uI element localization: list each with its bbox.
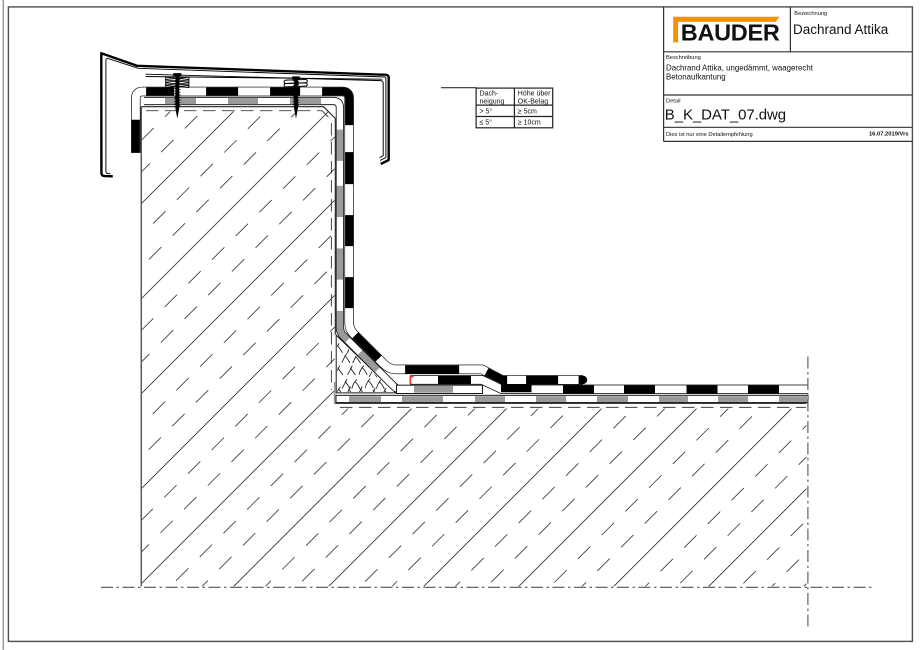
svg-text:Dachrand Attika, ungedämmt, wa: Dachrand Attika, ungedämmt, waagerecht bbox=[666, 64, 814, 73]
svg-text:> 5°: > 5° bbox=[480, 107, 493, 115]
svg-text:≥ 5cm: ≥ 5cm bbox=[518, 108, 537, 115]
svg-text:Dies ist nur eine Detailempfeh: Dies ist nur eine Detailempfehlung bbox=[666, 132, 753, 138]
svg-text:Betonaufkantung: Betonaufkantung bbox=[666, 73, 726, 82]
svg-text:Dachrand Attika: Dachrand Attika bbox=[793, 22, 889, 37]
svg-text:≥ 10cm: ≥ 10cm bbox=[518, 119, 541, 126]
svg-text:Höhe über: Höhe über bbox=[518, 91, 551, 98]
svg-text:neigung: neigung bbox=[480, 98, 505, 105]
svg-text:16.07.2019/Vrs: 16.07.2019/Vrs bbox=[869, 132, 909, 138]
svg-text:Beschreibung: Beschreibung bbox=[666, 55, 701, 61]
svg-text:BAUDER: BAUDER bbox=[681, 19, 780, 45]
svg-text:B_K_DAT_07.dwg: B_K_DAT_07.dwg bbox=[665, 107, 786, 124]
svg-text:Dach-: Dach- bbox=[480, 91, 499, 98]
svg-text:Bezeichnung: Bezeichnung bbox=[794, 11, 827, 17]
svg-text:OK-Belag: OK-Belag bbox=[518, 98, 548, 105]
svg-text:Detail: Detail bbox=[666, 99, 681, 105]
svg-text:≤ 5°: ≤ 5° bbox=[480, 118, 493, 126]
